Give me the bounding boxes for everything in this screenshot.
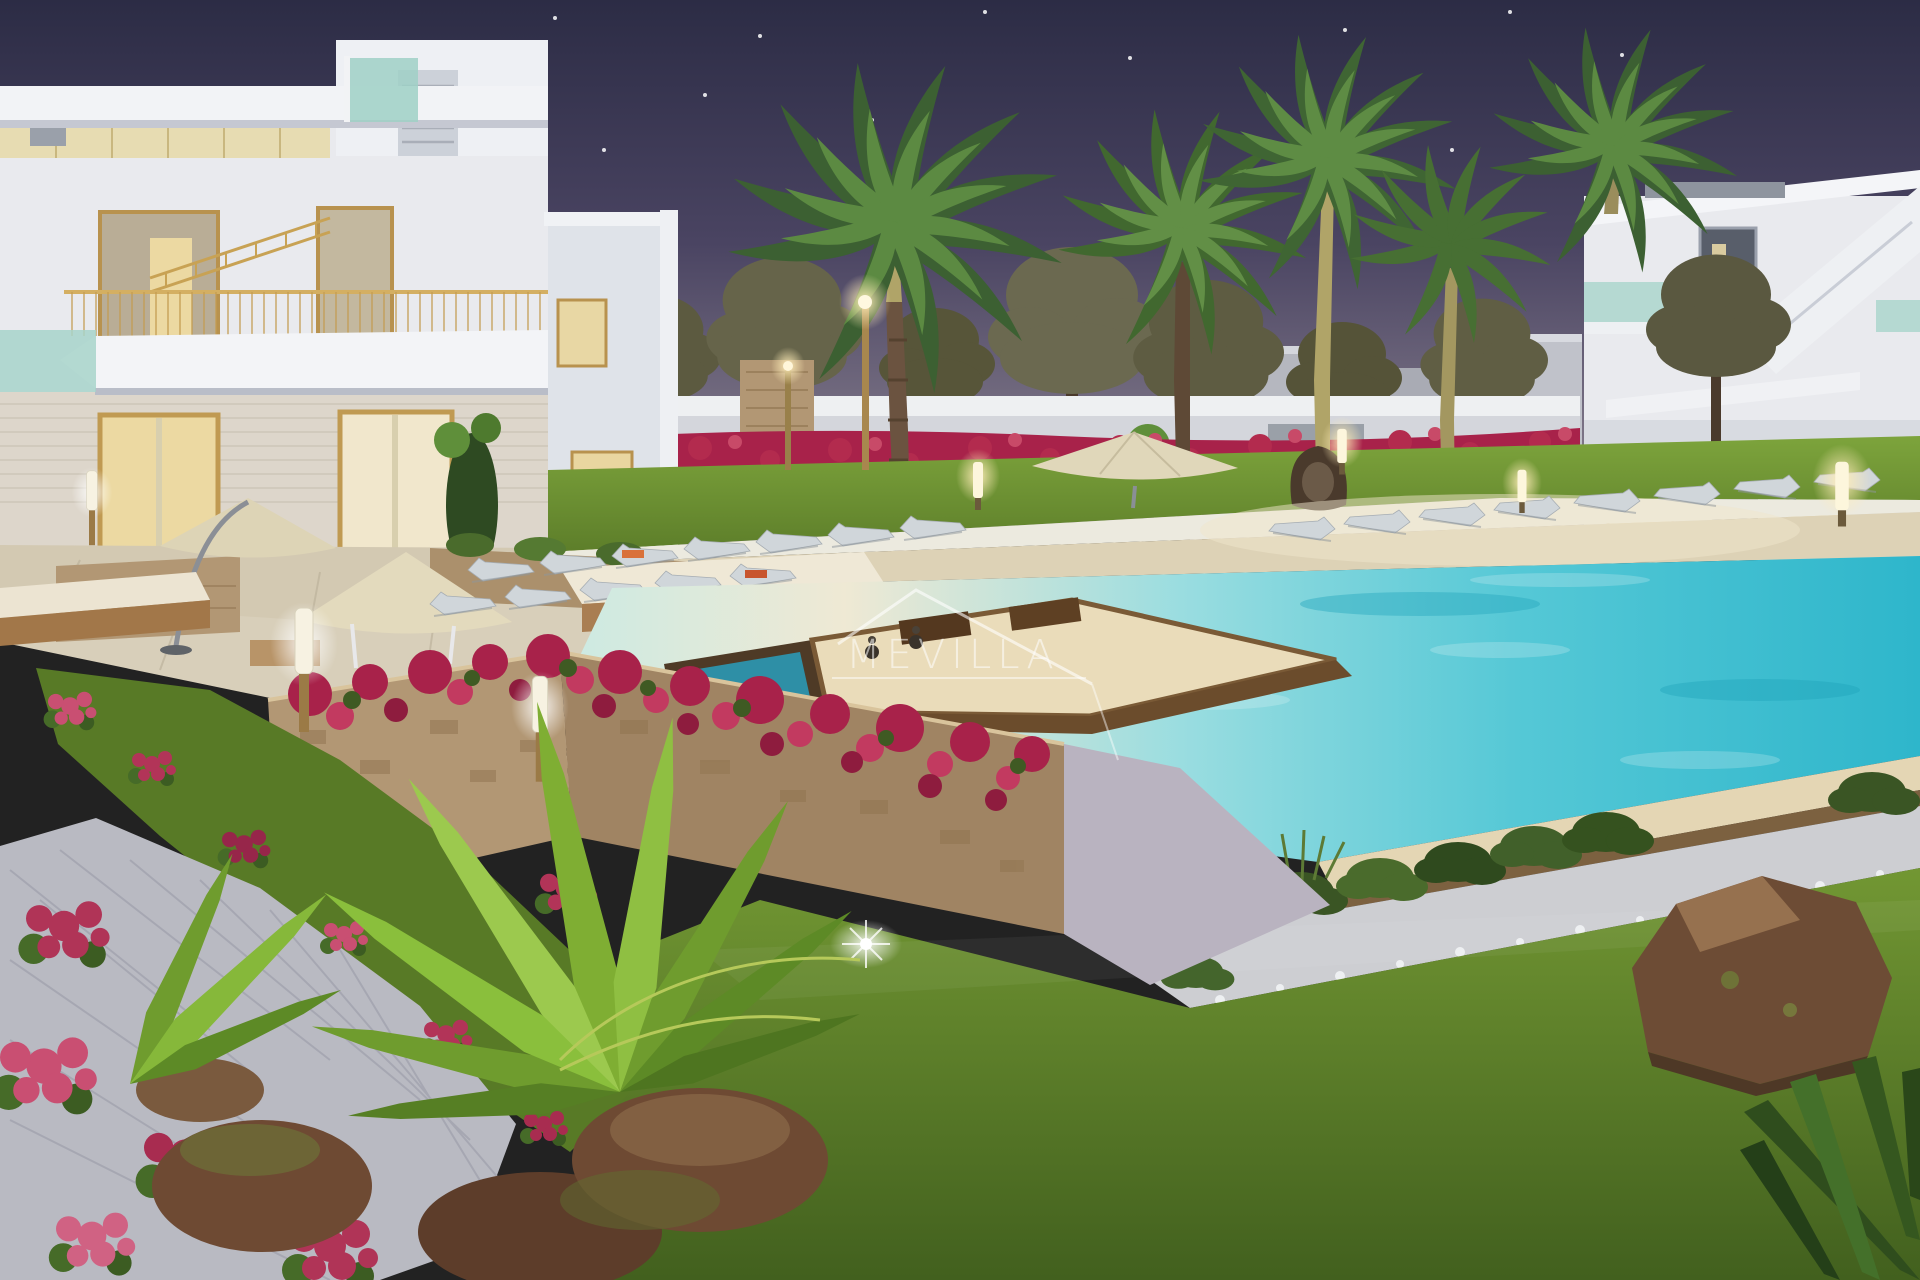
scene-canvas: MEVILLA <box>0 0 1920 1280</box>
star <box>1128 56 1132 60</box>
star <box>602 148 606 152</box>
star <box>758 34 762 38</box>
lamp-head <box>858 295 872 309</box>
resort-night-render: MEVILLA <box>0 0 1920 1280</box>
roof-glass-balustrade <box>348 58 418 122</box>
flower-cluster <box>520 1111 568 1146</box>
lit-window <box>558 300 606 366</box>
glass-balustrade <box>1876 300 1920 332</box>
ground-spotlight <box>830 920 902 968</box>
star <box>1450 148 1454 152</box>
star <box>983 10 987 14</box>
watermark-text: MEVILLA <box>846 632 1060 678</box>
towel <box>622 550 644 558</box>
lamp-post <box>862 306 869 470</box>
star <box>1508 10 1512 14</box>
towel <box>745 570 767 578</box>
roof-parapet <box>0 86 548 120</box>
star <box>553 16 557 20</box>
star <box>703 93 707 97</box>
balcony-slab <box>60 330 548 388</box>
star <box>1343 28 1347 32</box>
upper-opening <box>318 208 392 342</box>
star <box>1620 53 1624 57</box>
moss <box>180 1124 320 1176</box>
moss <box>560 1170 720 1230</box>
glass-balustrade <box>0 330 96 392</box>
